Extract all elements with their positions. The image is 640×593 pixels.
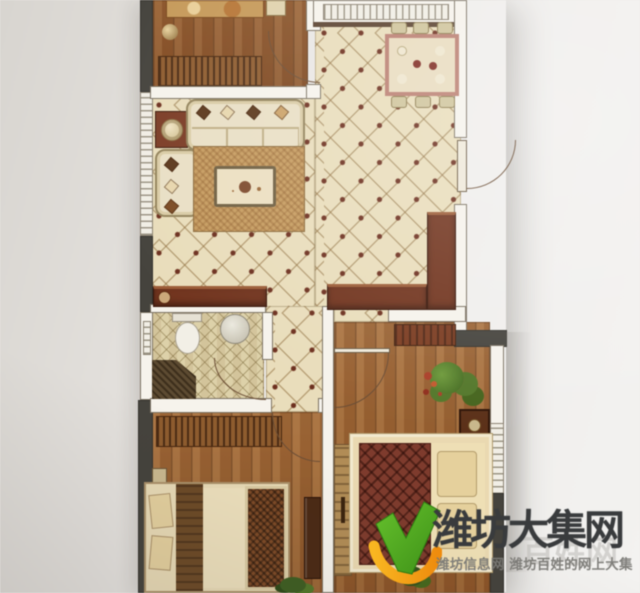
nightstand-lamp xyxy=(468,419,481,432)
sofa-pillow xyxy=(164,157,179,172)
bedroom-se-window xyxy=(490,423,504,495)
toilet-tank xyxy=(172,313,202,322)
dresser-sw xyxy=(304,497,321,579)
plant-se xyxy=(430,362,464,394)
dining-chair xyxy=(391,22,407,34)
bed-sw xyxy=(144,482,290,593)
dining-chair xyxy=(437,22,453,34)
bed-pillow xyxy=(148,493,173,529)
bed-sheet xyxy=(203,488,245,588)
sofa-pillow xyxy=(196,105,211,120)
dining-chair xyxy=(391,96,407,108)
plant-flowers xyxy=(424,372,432,380)
wall-right-lower-a xyxy=(490,345,504,425)
bed-north xyxy=(166,0,264,18)
sofa-pillow xyxy=(164,179,179,194)
wall-exterior-left-top xyxy=(140,0,153,92)
centerpiece xyxy=(413,60,421,68)
living-room-window xyxy=(140,92,153,236)
sofa-pillow xyxy=(220,105,235,120)
bathroom-left-wall xyxy=(140,312,153,400)
wall-exterior-left-mid xyxy=(140,236,153,312)
entry-door-leaf xyxy=(457,140,467,192)
bed-pillow xyxy=(149,535,174,571)
watermark-subtitle: 潍坊信息网 潍坊百姓的网上大集 xyxy=(436,559,633,573)
foot-bench xyxy=(245,486,287,590)
sofa-pillow xyxy=(274,105,289,120)
bed-runner xyxy=(176,484,203,591)
wall-bedroom-dining-b xyxy=(306,84,321,99)
toilet-bowl xyxy=(175,322,200,354)
wardrobe-north xyxy=(158,56,262,86)
side-table xyxy=(155,111,188,148)
photo-layer: 百姓网 潍坊大集网 潍坊信息网 潍坊百姓的网上大集 xyxy=(0,0,640,593)
place-settings xyxy=(397,46,407,56)
tv-console xyxy=(153,286,267,307)
dining-window xyxy=(323,4,449,20)
dining-chair xyxy=(413,22,429,34)
coffee-table-decor xyxy=(239,181,251,193)
daji-logo-icon xyxy=(366,498,442,588)
screenshot: 百姓网 潍坊大集网 潍坊信息网 潍坊百姓的网上大集 xyxy=(0,0,640,593)
sofa-main xyxy=(186,99,305,151)
bed-pillow xyxy=(437,451,477,497)
wardrobe-sw xyxy=(156,416,282,447)
bathroom-window xyxy=(143,321,151,355)
coffee-table xyxy=(214,166,276,207)
sideboard xyxy=(327,284,427,310)
sofa-seat-cushions xyxy=(192,127,299,147)
dining-table xyxy=(385,34,459,96)
bedroom-sw-top-wall-a xyxy=(150,398,272,413)
plant-sw xyxy=(280,577,306,593)
sofa-pillow xyxy=(164,199,179,214)
wash-basin xyxy=(220,314,250,344)
shoe-cabinet xyxy=(427,212,456,310)
dining-chair xyxy=(439,96,455,108)
sofa-pillow xyxy=(246,105,261,120)
hallway-tile-floor xyxy=(266,306,324,412)
table-lamp xyxy=(161,119,183,141)
nightstand-north xyxy=(266,0,286,16)
dining-chair xyxy=(415,96,431,108)
closet-handle xyxy=(341,497,345,523)
wall-bedroom-divider xyxy=(322,306,334,593)
bathroom-right-wall xyxy=(262,312,273,360)
console-decor xyxy=(158,291,171,304)
dresser-se-top xyxy=(394,324,456,346)
watermark-title: 潍坊大集网 xyxy=(432,510,622,551)
floor-lamp xyxy=(162,24,178,40)
wall-bedroom-living xyxy=(150,86,310,99)
